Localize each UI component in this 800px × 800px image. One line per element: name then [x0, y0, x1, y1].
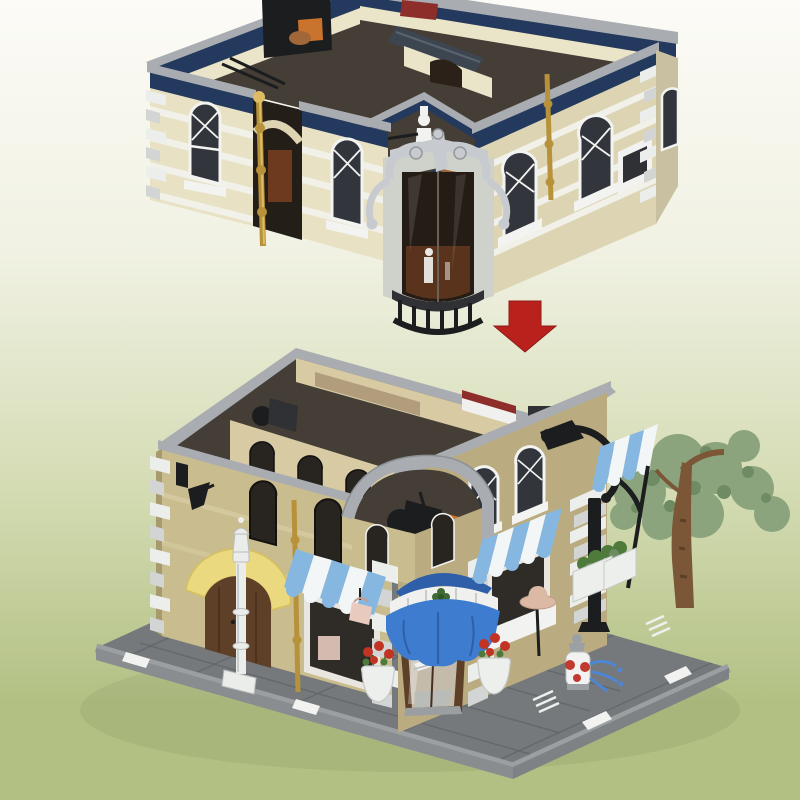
door-knob: [231, 620, 235, 624]
product-photo: Brick-built modular corner hat shop set …: [0, 0, 800, 800]
complete-building: [80, 348, 790, 796]
scene-illustration: [0, 0, 800, 800]
recessed-archway: [253, 91, 302, 246]
dark-arched-window: [250, 481, 276, 545]
copper-pot: [289, 31, 311, 45]
window-merchandise: [318, 636, 340, 660]
iron-post-base: [578, 622, 610, 632]
black-corbel: [176, 462, 188, 488]
archway-interior: [268, 150, 292, 202]
hydrant-port: [573, 674, 581, 682]
upper-facade-left: [146, 63, 256, 226]
upper-floor-module: [146, 0, 678, 332]
turret-bay-window: [402, 170, 474, 302]
dark-arched-window: [315, 499, 341, 563]
upper-facade-mid: [299, 101, 391, 262]
assembly-arrow-icon: [494, 301, 556, 352]
door-floor: [414, 690, 452, 707]
flower-pot: [362, 641, 395, 702]
figurine: [425, 248, 433, 256]
hydrant-port: [580, 662, 590, 672]
interior-stove: [262, 0, 332, 58]
lamp-head: [233, 534, 249, 552]
upper-end-wall-right: [656, 50, 678, 224]
lamp-capital: [233, 552, 249, 562]
corner-turret: [367, 129, 510, 332]
arched-window-partial: [662, 88, 678, 150]
flower-pot: [478, 633, 511, 694]
dark-arched-window: [432, 514, 454, 568]
hydrant-port: [565, 660, 575, 670]
